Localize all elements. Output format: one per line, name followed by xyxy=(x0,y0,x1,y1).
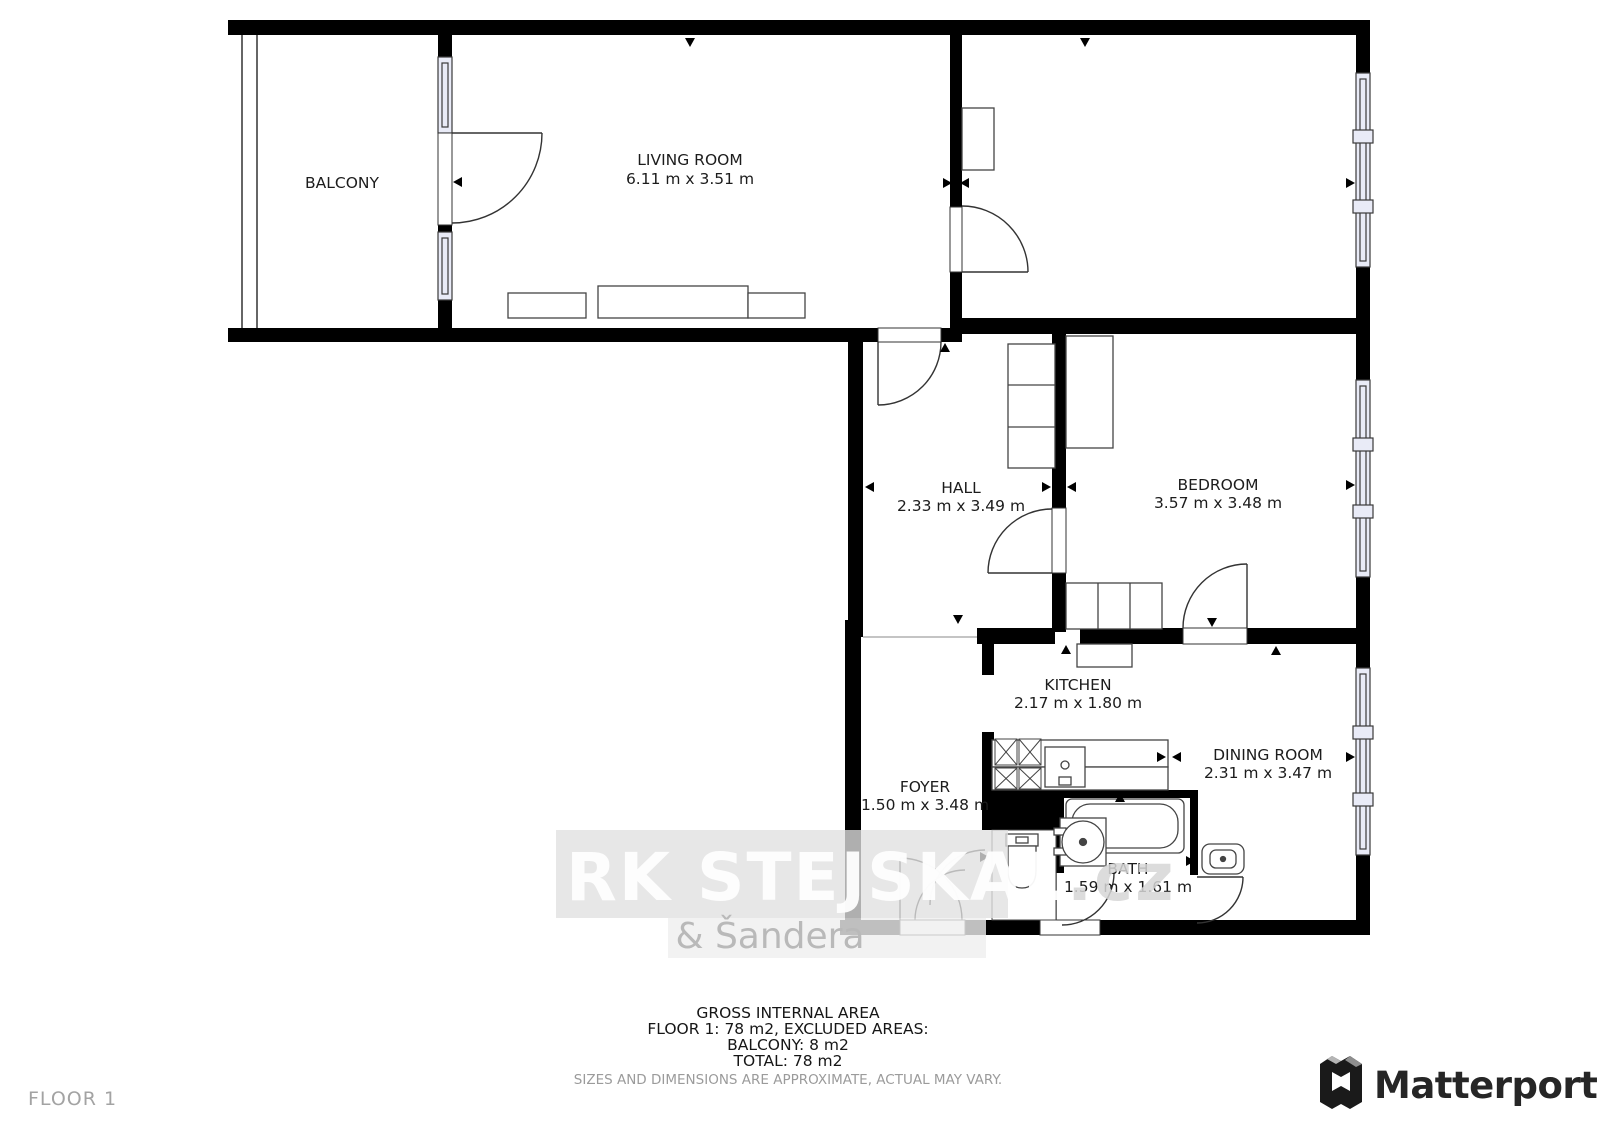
hall-shelves-icon xyxy=(1008,344,1055,468)
door-living-rightroom xyxy=(962,206,1028,272)
matterport-logo-text: Matterport xyxy=(1374,1064,1597,1107)
sofa-icons xyxy=(508,286,805,318)
floor-label: FLOOR 1 xyxy=(28,1088,117,1110)
windows xyxy=(438,57,1373,855)
room-label-kitchen: KITCHEN xyxy=(1044,676,1111,694)
arrow-right-icon xyxy=(1346,752,1355,762)
dresser-icon xyxy=(1066,583,1162,629)
room-dims-dining: 2.31 m x 3.47 m xyxy=(1204,764,1332,782)
room-dims-living: 6.11 m x 3.51 m xyxy=(626,170,754,188)
room-dims-hall: 2.33 m x 3.49 m xyxy=(897,497,1025,515)
arrow-right-icon xyxy=(1042,482,1051,492)
room-label-balcony: BALCONY xyxy=(305,174,379,192)
balcony-railing xyxy=(242,35,257,328)
door-living-hall xyxy=(878,342,941,405)
watermark-suffix: .cz xyxy=(1067,839,1176,916)
window-balcony-bottom xyxy=(438,232,452,300)
room-label-hall: HALL xyxy=(941,479,981,497)
floorplan-svg: BALCONY LIVING ROOM 6.11 m x 3.51 m HALL… xyxy=(0,0,1600,1131)
dining-basin-icon xyxy=(1202,844,1244,874)
matterport-logo-icon xyxy=(1320,1056,1362,1109)
arrow-left-icon xyxy=(1067,482,1076,492)
room-label-living: LIVING ROOM xyxy=(637,151,742,169)
footer-total-area: TOTAL: 78 m2 xyxy=(733,1052,843,1070)
window-balcony-top xyxy=(438,57,452,133)
watermark: RK STEJSKAL.cz & Šandera xyxy=(556,830,1176,958)
room-dims-bedroom: 3.57 m x 3.48 m xyxy=(1154,494,1282,512)
arrow-down-icon xyxy=(685,38,695,47)
window-top-right-room xyxy=(1353,73,1373,267)
footer-disclaimer: SIZES AND DIMENSIONS ARE APPROXIMATE, AC… xyxy=(574,1072,1002,1088)
room-labels: BALCONY LIVING ROOM 6.11 m x 3.51 m HALL… xyxy=(305,151,1332,896)
kitchen-sink-icon xyxy=(1045,747,1085,787)
arrow-down-icon xyxy=(1080,38,1090,47)
arrow-down-icon xyxy=(953,615,963,624)
arrow-up-icon xyxy=(1271,646,1281,655)
room-label-dining: DINING ROOM xyxy=(1213,746,1323,764)
arrow-left-icon xyxy=(453,177,462,187)
door-balcony-living xyxy=(452,133,542,223)
arrow-up-icon xyxy=(1061,645,1071,654)
cabinet-icon xyxy=(962,108,994,170)
arrow-right-icon xyxy=(1346,480,1355,490)
arrow-right-icon xyxy=(1346,178,1355,188)
svg-text:RK STEJSKAL.cz: RK STEJSKAL.cz xyxy=(566,839,1176,916)
room-label-foyer: FOYER xyxy=(900,778,951,796)
watermark-secondary: & Šandera xyxy=(675,915,864,957)
footer: GROSS INTERNAL AREA FLOOR 1: 78 m2, EXCL… xyxy=(574,1004,1002,1088)
room-dims-kitchen: 2.17 m x 1.80 m xyxy=(1014,694,1142,712)
direction-arrows xyxy=(453,38,1355,866)
arrow-left-icon xyxy=(1172,752,1181,762)
arrow-left-icon xyxy=(865,482,874,492)
room-label-bedroom: BEDROOM xyxy=(1178,476,1259,494)
window-bedroom xyxy=(1353,380,1373,577)
floorplan-page: BALCONY LIVING ROOM 6.11 m x 3.51 m HALL… xyxy=(0,0,1600,1131)
arrow-down-icon xyxy=(1207,618,1217,627)
watermark-primary: RK STEJSKAL xyxy=(566,839,1067,916)
door-bath-dining xyxy=(1197,877,1243,923)
branding: Matterport xyxy=(1320,1056,1597,1109)
fridge-icon xyxy=(1077,644,1132,667)
wardrobe-icon xyxy=(1066,336,1113,448)
room-dims-foyer: 1.50 m x 3.48 m xyxy=(861,796,989,814)
door-hall-bedroom xyxy=(988,509,1052,573)
window-dining xyxy=(1353,668,1373,855)
